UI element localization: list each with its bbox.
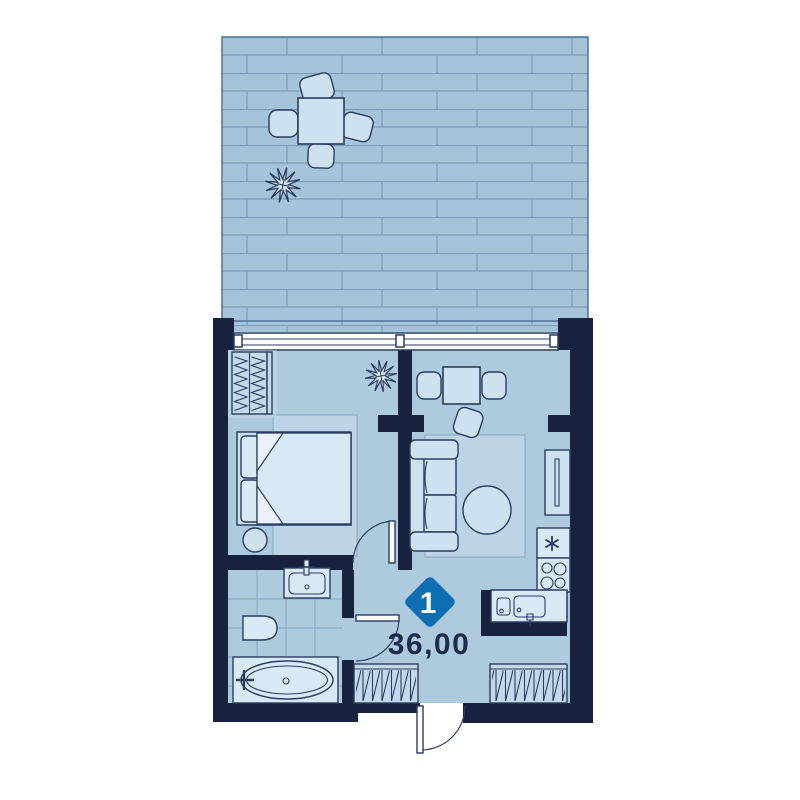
sofa-armrest (410, 532, 458, 551)
closet-hatch (490, 664, 567, 703)
toilet-icon (243, 616, 277, 640)
sofa-cushion (423, 458, 456, 495)
kitchen-sink-icon (491, 590, 567, 626)
floor-plan: 1 36,00 (0, 0, 800, 800)
window-post-icon (396, 335, 404, 347)
terrace (222, 37, 588, 332)
dining-chair-icon (482, 372, 506, 399)
bedside-table-icon (243, 528, 267, 552)
terrace-table-top (298, 98, 344, 144)
terrace-chair-icon (269, 110, 298, 137)
window-band (234, 333, 558, 350)
floor-plan-page: 1 36,00 (0, 0, 800, 800)
tv-icon (555, 459, 559, 506)
sofa-icon (410, 440, 458, 551)
pillow-icon (241, 436, 259, 478)
pillow-icon (241, 480, 259, 522)
area-label: 36,00 (388, 628, 471, 661)
sofa-cushion (423, 495, 456, 532)
terrace-chair-icon (308, 144, 335, 169)
window-post-icon (234, 335, 242, 347)
stove-icon (537, 558, 570, 592)
closet-hatch (354, 664, 418, 703)
window-post-icon (550, 335, 558, 347)
wardrobe-icon (232, 352, 272, 414)
dining-table-icon (443, 367, 480, 404)
bathtub-icon (233, 657, 338, 703)
entry-door-icon (417, 706, 465, 753)
unit-badge-number: 1 (420, 587, 437, 620)
coffee-table-icon (463, 486, 511, 534)
fridge-icon (537, 528, 570, 558)
sofa-armrest (410, 440, 458, 459)
double-bed-icon (237, 432, 351, 525)
tv-stand-icon (545, 450, 570, 515)
dining-chair-icon (417, 372, 441, 399)
